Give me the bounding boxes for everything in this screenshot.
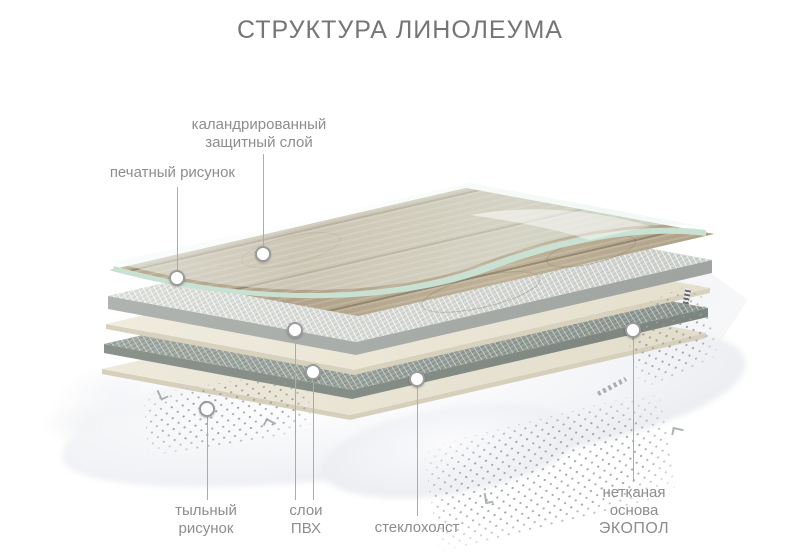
leader-back-pattern [207,417,208,500]
leader-nonwoven-base [633,338,634,482]
stamp-mark [484,492,494,504]
callout-marker-printed-pattern [169,270,185,286]
leader-printed-pattern [177,187,178,271]
label-printed-pattern: печатный рисунок [50,164,235,182]
label-pvc-layers: слои ПВХ [266,502,346,538]
page-title: СТРУКТУРА ЛИНОЛЕУМА [0,16,800,45]
leader-protective [263,154,264,248]
label-back-pattern: тыльный рисунок [156,502,256,538]
leader-pvc-upper [295,338,296,500]
label-protective: каландрированный защитный слой [169,116,349,152]
leader-pvc-lower [313,380,314,500]
stamp-mark [671,427,683,437]
callout-marker-protective [255,246,271,262]
callout-marker-back-pattern [199,401,215,417]
callout-marker-pvc-upper [287,322,303,338]
label-nonwoven-base: нетканая основа ЭКОПОЛ [574,484,694,538]
callout-marker-nonwoven-base [625,322,641,338]
label-glass-fiber: стеклохолст [347,519,487,537]
callout-marker-pvc-lower [305,364,321,380]
callout-marker-glass-fiber [409,371,425,387]
leader-glass-fiber [417,387,418,516]
linoleum-structure-diagram: СТРУКТУРА ЛИНОЛЕУМА [0,0,800,552]
